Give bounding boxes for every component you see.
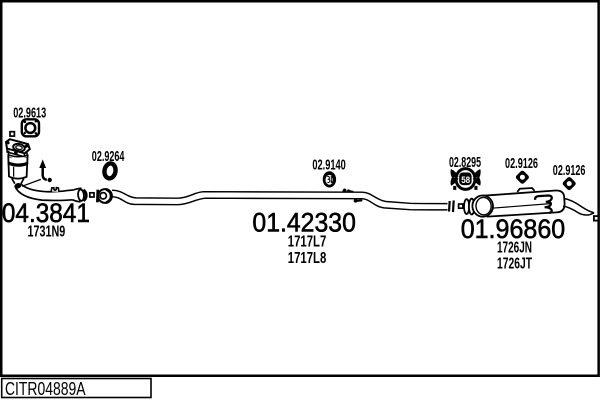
- svg-text:02.9126: 02.9126: [505, 156, 538, 172]
- svg-text:CITR04889A: CITR04889A: [5, 378, 86, 399]
- svg-text:1726JN: 1726JN: [497, 239, 532, 256]
- svg-text:1717L8: 1717L8: [288, 250, 327, 267]
- svg-text:02.9140: 02.9140: [312, 157, 345, 173]
- svg-text:1726JT: 1726JT: [497, 256, 532, 273]
- svg-text:02.9126: 02.9126: [553, 163, 586, 179]
- svg-text:1717L7: 1717L7: [288, 234, 327, 251]
- svg-text:58: 58: [461, 175, 470, 185]
- svg-text:1731N9: 1731N9: [28, 224, 66, 241]
